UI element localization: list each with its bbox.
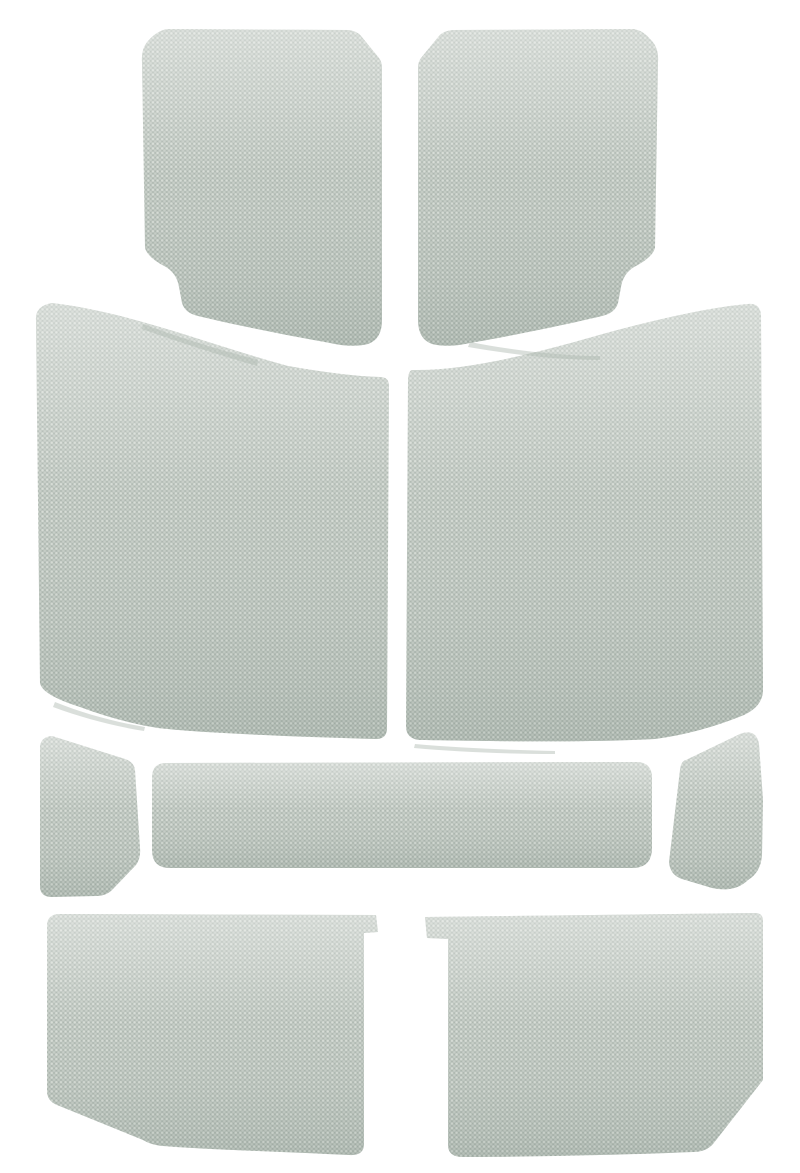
panel-side-right: [669, 732, 763, 889]
panel-mid-right: [406, 304, 763, 741]
panel-mid-left: [36, 303, 389, 739]
panel-center-strip: [152, 762, 652, 868]
panel-bottom-left: [47, 914, 378, 1155]
shadow-sliver: [414, 744, 555, 754]
panel-bottom-right: [425, 913, 763, 1157]
panel-top-left: [142, 29, 382, 346]
panel-top-right: [418, 29, 658, 346]
kit-pieces-canvas: [0, 0, 800, 1173]
panel-side-left: [40, 736, 140, 897]
headliner-kit-photo: [0, 0, 800, 1173]
